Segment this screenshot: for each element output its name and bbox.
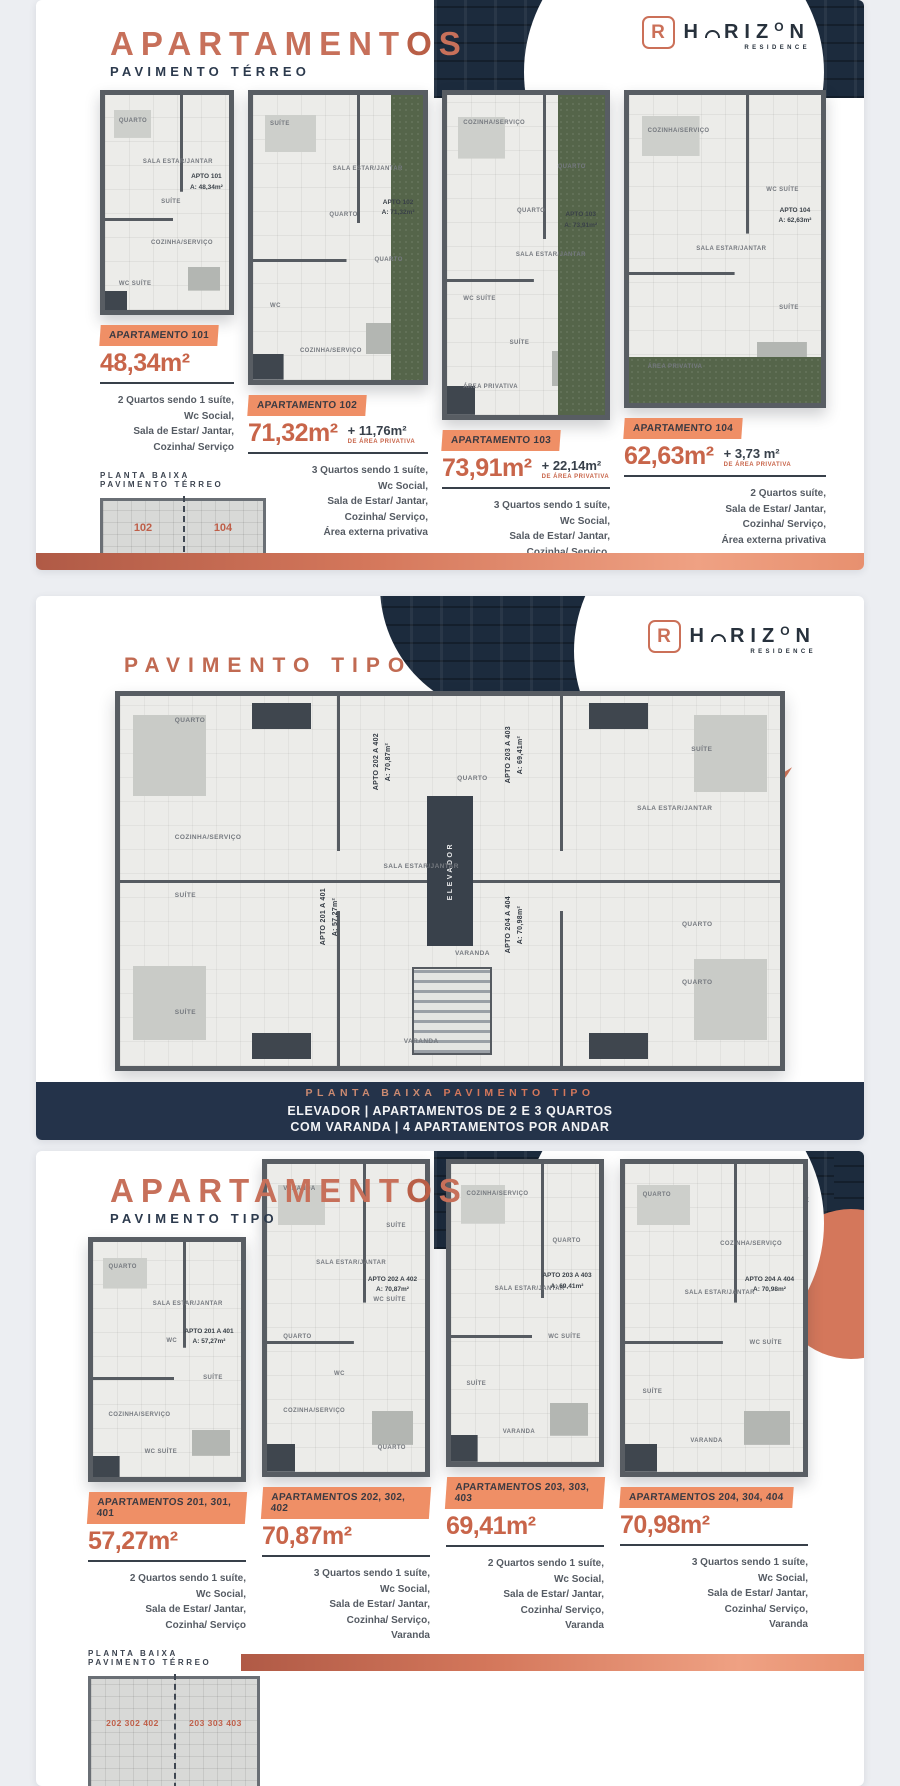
apartment-badge: APARTAMENTOS 202, 302, 402 [261, 1487, 431, 1519]
list-item-label: SUÍTE [203, 1375, 223, 1381]
apartment-features: 3 Quartos sendo 1 suíte, Wc Social, Sala… [620, 1555, 808, 1633]
area-row: 73,91m² + 22,14m²DE ÁREA PRIVATIVA [442, 454, 610, 483]
list-item-label: QUARTO [109, 1264, 137, 1270]
extra-area-value: + 11,76m² [348, 424, 416, 437]
list-item-label: QUARTO [374, 257, 402, 263]
list-item-label: 203 303 403 [189, 1718, 242, 1728]
divider-rule [100, 382, 234, 384]
title-part: S [439, 25, 468, 62]
page-title: PAVIMENTO TIPO [124, 654, 412, 678]
logo-h: H [690, 625, 710, 647]
apartment-column-201: APTO 201 A 401 A: 57,27m² QUARTOSALA EST… [88, 1159, 246, 1786]
area-row: 70,87m² [262, 1522, 430, 1551]
apartment-badge: APARTAMENTOS 203, 303, 403 [445, 1477, 605, 1509]
logo-h: H [684, 21, 704, 43]
unit-tag-203: APTO 203 A 403 A: 69,41m² [503, 726, 527, 783]
unit-tag: APTO 102 A: 71,32m² [382, 198, 415, 219]
list-item-label: SALA ESTAR/JANTAR [696, 246, 766, 252]
apartment-area: 71,32m² [248, 419, 338, 448]
list-item-label: QUARTO [682, 979, 712, 986]
page-title: APARTAMENTOS [110, 26, 468, 62]
horizon-logo: R HRIZON RESIDENCE [642, 16, 810, 51]
area-row: 48,34m² [100, 349, 234, 378]
room-labels: QUARTOSALA ESTAR/JANTARWCSUÍTECOZINHA/SE… [99, 1248, 235, 1471]
list-item-label: WC SUÍTE [373, 1297, 406, 1303]
site-plan-title: PLANTA BAIXA PAVIMENTO TÉRREO [100, 471, 234, 489]
apartment-column-203: APTO 203 A 403 A: 69,41m² COZINHA/SERVIÇ… [446, 1159, 604, 1786]
list-item-label: QUARTO [517, 208, 545, 214]
floorplan-203: APTO 203 A 403 A: 69,41m² COZINHA/SERVIÇ… [446, 1159, 604, 1467]
list-item-label: QUARTO [283, 1334, 311, 1340]
floorplan-204: APTO 204 A 404 A: 70,98m² QUARTOCOZINHA/… [620, 1159, 808, 1477]
extra-area: + 22,14m²DE ÁREA PRIVATIVA [542, 459, 610, 480]
apartment-columns: APTO 101 A: 48,34m² QUARTOSALA ESTAR/JAN… [100, 90, 826, 570]
logo-n: N [796, 625, 816, 647]
band-title-bold: PAVIMENTO TIPO [443, 1087, 594, 1099]
area-row: 69,41m² [446, 1512, 604, 1541]
apartment-column-202: APTO 202 A 402 A: 70,87m² VARANDASUÍTESA… [262, 1159, 430, 1786]
unit-tag: APTO 104 A: 62,63m² [779, 206, 812, 227]
navy-footer-band: PLANTA BAIXA PAVIMENTO TIPO ELEVADOR | A… [36, 1082, 864, 1140]
list-item-label: QUARTO [175, 717, 205, 724]
section-header: PAVIMENTO TIPO [124, 654, 412, 678]
band-description: ELEVADOR | APARTAMENTOS DE 2 E 3 QUARTOS… [287, 1103, 612, 1136]
apartment-columns: APTO 201 A 401 A: 57,27m² QUARTOSALA EST… [88, 1159, 808, 1786]
list-item-label: WC SUÍTE [145, 1449, 178, 1455]
divider-rule [624, 475, 826, 477]
title-part: APARTAMENT [110, 25, 406, 62]
extra-area: + 3,73 m²DE ÁREA PRIVATIVA [724, 447, 792, 468]
divider-rule [248, 452, 428, 454]
salmon-gradient-band [36, 553, 864, 570]
room-labels: COZINHA/SERVIÇOQUARTOSALA ESTAR/JANTARWC… [457, 1170, 593, 1456]
list-item-label: SALA ESTAR/JANTAR [384, 863, 459, 870]
divider-rule [446, 1545, 604, 1547]
logo-mark-letter: R [657, 627, 671, 646]
apartment-features: 2 Quartos sendo 1 suíte, Wc Social, Sala… [88, 1571, 246, 1633]
floorplan-103: APTO 103 A: 73,91m² COZINHA/SERVIÇOQUART… [442, 90, 610, 420]
list-item-label: COZINHA/SERVIÇO [151, 240, 213, 246]
room-labels: SUÍTESALA ESTAR/JANTARQUARTOQUARTOWCCOZI… [259, 101, 417, 374]
extra-area-note: DE ÁREA PRIVATIVA [542, 474, 610, 480]
title-part: PAVIMENTO [124, 654, 331, 677]
unit-tag: APTO 204 A 404 A: 70,98m² [745, 1275, 794, 1296]
list-item-label: QUARTO [457, 775, 487, 782]
apartment-badge: APARTAMENTOS 204, 304, 404 [619, 1487, 793, 1508]
floorplan-104: APTO 104 A: 62,63m² COZINHA/SERVIÇOWC SU… [624, 90, 826, 408]
apartment-column-101: APTO 101 A: 48,34m² QUARTOSALA ESTAR/JAN… [100, 90, 234, 570]
salmon-gradient-band [241, 1654, 864, 1671]
apartment-badge: APARTAMENTO 102 [247, 395, 367, 416]
extra-area-note: DE ÁREA PRIVATIVA [348, 439, 416, 445]
apartment-area: 69,41m² [446, 1512, 536, 1541]
horizon-logo: R HRIZON RESIDENCE [648, 620, 816, 655]
list-item-label: QUARTO [558, 164, 586, 170]
apartment-column-104: APTO 104 A: 62,63m² COZINHA/SERVIÇOWC SU… [624, 90, 826, 570]
band-title-light: PLANTA BAIXA [305, 1087, 443, 1099]
list-item-label: WC [270, 303, 281, 309]
divider-rule [262, 1555, 430, 1557]
logo-mark-icon: R [648, 620, 681, 653]
list-item-label: SUÍTE [175, 1009, 196, 1016]
logo-mark-icon: R [642, 16, 675, 49]
logo-mark-letter: R [651, 23, 665, 42]
floorplan-201: APTO 201 A 401 A: 57,27m² QUARTOSALA EST… [88, 1237, 246, 1482]
list-item-label: VARANDA [404, 1038, 439, 1045]
band-line-2: ELEVADOR | APARTAMENTOS DE 2 E 3 QUARTOS [287, 1104, 612, 1118]
list-item-label: VARANDA [690, 1438, 722, 1444]
area-row: 71,32m² + 11,76m²DE ÁREA PRIVATIVA [248, 419, 428, 448]
room-labels: QUARTOSALA ESTAR/JANTARSUÍTECOZINHA/SERV… [111, 101, 223, 304]
list-item-label: ÁREA PRIVATIVA [463, 384, 518, 390]
logo-riz: RIZ [724, 21, 774, 43]
apartment-badge: APARTAMENTOS 201, 301, 401 [87, 1492, 247, 1524]
logo-n: N [790, 21, 810, 43]
title-accent-o: O [406, 1172, 439, 1209]
list-item-label: SALA ESTAR/JANTAR [143, 159, 213, 165]
list-item-label: QUARTO [643, 1192, 671, 1198]
list-item-label: COZINHA/SERVIÇO [300, 348, 362, 354]
apartment-features: 2 Quartos sendo 1 suíte, Wc Social, Sala… [446, 1556, 604, 1634]
apartment-features: 3 Quartos sendo 1 suíte, Wc Social, Sala… [262, 1566, 430, 1644]
page-title: APARTAMENTOS [110, 1173, 468, 1209]
list-item-label: SUÍTE [643, 1389, 663, 1395]
title-accent-o: O [406, 25, 439, 62]
apartment-area: 62,63m² [624, 442, 714, 471]
list-item-label: QUARTO [378, 1445, 406, 1451]
list-item-label: WC [166, 1338, 177, 1344]
divider-rule [442, 487, 610, 489]
apartment-badge: APARTAMENTO 104 [623, 418, 743, 439]
unit-tag-202: APTO 202 A 402 A: 70,87m² [371, 733, 395, 790]
divider-rule [88, 1560, 246, 1562]
list-item-label: 102 [134, 522, 152, 534]
extra-area-note: DE ÁREA PRIVATIVA [724, 462, 792, 468]
logo-riz: RIZ [730, 625, 780, 647]
list-item-label: SUÍTE [175, 892, 196, 899]
site-plan-title: PLANTA BAIXA PAVIMENTO TÉRREO [88, 1649, 246, 1667]
site-plan-block: PLANTA BAIXA PAVIMENTO TÉRREO 202 302 40… [88, 1649, 246, 1786]
list-item-label: SUÍTE [691, 746, 712, 753]
list-item-label: VARANDA [455, 950, 490, 957]
logo-small-o: O [774, 20, 789, 34]
logo-arc-o-icon [705, 30, 720, 38]
logo-wordmark: HRIZON RESIDENCE [690, 620, 816, 655]
list-item-label: QUARTO [119, 118, 147, 124]
title-part: APARTAMENT [110, 1172, 406, 1209]
list-item-label: VARANDA [503, 1429, 535, 1435]
list-item-label: WC [334, 1371, 345, 1377]
list-item-label: COZINHA/SERVIÇO [109, 1412, 171, 1418]
extra-area-value: + 22,14m² [542, 459, 610, 472]
list-item-label: WC SUÍTE [548, 1334, 581, 1340]
apartment-column-103: APTO 103 A: 73,91m² COZINHA/SERVIÇOQUART… [442, 90, 610, 570]
apartment-area: 57,27m² [88, 1527, 178, 1556]
apartment-area: 70,87m² [262, 1522, 352, 1551]
page-subtitle: PAVIMENTO TIPO [110, 1211, 468, 1226]
room-labels: QUARTOCOZINHA/SERVIÇOSALA ESTAR/JANTARWC… [631, 1170, 797, 1466]
section-pavimento-terreo: R HRIZON RESIDENCE APARTAMENTOS PAVIMENT… [36, 0, 864, 570]
unit-tag: APTO 203 A 403 A: 69,41m² [542, 1271, 591, 1292]
list-item-label: ÁREA PRIVATIVA [648, 364, 703, 370]
room-labels: COZINHA/SERVIÇOWC SUÍTESALA ESTAR/JANTAR… [635, 101, 815, 397]
list-item-label: QUARTO [552, 1238, 580, 1244]
title-bold: TIPO [331, 654, 412, 677]
list-item-label: SUÍTE [161, 199, 181, 205]
apartment-badge: APARTAMENTO 103 [441, 430, 561, 451]
logo-subtitle: RESIDENCE [684, 45, 810, 51]
list-item-label: SALA ESTAR/JANTAR [316, 1260, 386, 1266]
apartment-features: 2 Quartos sendo 1 suíte, Wc Social, Sala… [100, 393, 234, 455]
list-item-label: WC SUÍTE [766, 187, 799, 193]
list-item-label: 104 [214, 522, 232, 534]
section-header: APARTAMENTOS PAVIMENTO TIPO [110, 1173, 468, 1226]
list-item-label: WC SUÍTE [463, 296, 496, 302]
list-item-label: COZINHA/SERVIÇO [720, 1241, 782, 1247]
list-item-label: WC SUÍTE [119, 281, 152, 287]
logo-small-o: O [780, 624, 795, 638]
apartment-column-204: APTO 204 A 404 A: 70,98m² QUARTOCOZINHA/… [620, 1159, 808, 1786]
section-header: APARTAMENTOS PAVIMENTO TÉRREO [110, 26, 468, 79]
list-item-label: WC SUÍTE [750, 1340, 783, 1346]
list-item-label: COZINHA/SERVIÇO [175, 834, 242, 841]
list-item-label: COZINHA/SERVIÇO [283, 1408, 345, 1414]
list-item-label: COZINHA/SERVIÇO [467, 1191, 529, 1197]
list-item-label: COZINHA/SERVIÇO [648, 128, 710, 134]
area-row: 57,27m² [88, 1527, 246, 1556]
area-row: 62,63m² + 3,73 m²DE ÁREA PRIVATIVA [624, 442, 826, 471]
list-item-label: SALA ESTAR/JANTAR [516, 252, 586, 258]
list-item-label: COZINHA/SERVIÇO [463, 120, 525, 126]
band-title: PLANTA BAIXA PAVIMENTO TIPO [305, 1087, 594, 1099]
site-plan-thumbnail: 202 302 402203 303 403201 301 401204 304… [88, 1676, 260, 1786]
unit-tag: APTO 103 A: 73,91m² [564, 210, 597, 231]
apartment-features: 3 Quartos sendo 1 suíte, Wc Social, Sala… [248, 463, 428, 541]
divider-rule [620, 1544, 808, 1546]
apartment-area: 73,91m² [442, 454, 532, 483]
list-item-label: SUÍTE [779, 305, 799, 311]
page-subtitle: PAVIMENTO TÉRREO [110, 64, 468, 79]
apartment-features: 2 Quartos suíte, Sala de Estar/ Jantar, … [624, 486, 826, 548]
room-labels: QUARTOSUÍTEQUARTOSALA ESTAR/JANTARCOZINH… [130, 706, 770, 1056]
list-item-label: SUÍTE [467, 1381, 487, 1387]
logo-subtitle: RESIDENCE [690, 649, 816, 655]
unit-tag: APTO 101 A: 48,34m² [190, 172, 223, 193]
extra-area: + 11,76m²DE ÁREA PRIVATIVA [348, 424, 416, 445]
logo-arc-o-icon [711, 634, 726, 642]
section-apartamentos-tipo: R HRIZON RESIDENCE APARTAMENTOS PAVIMENT… [36, 1151, 864, 1786]
list-item-label: SALA ESTAR/JANTAR [637, 805, 712, 812]
list-item-label: 202 302 402 [106, 1718, 159, 1728]
band-line-3: COM VARANDA | 4 APARTAMENTOS POR ANDAR [290, 1120, 609, 1134]
title-part: S [439, 1172, 468, 1209]
apartment-badge: APARTAMENTO 101 [99, 325, 219, 346]
list-item-label: QUARTO [329, 212, 357, 218]
apartment-column-102: APTO 102 A: 71,32m² SUÍTESALA ESTAR/JANT… [248, 90, 428, 570]
unit-tag-201: APTO 201 A 401 A: 57,27m² [318, 888, 342, 945]
floorplan-102: APTO 102 A: 71,32m² SUÍTESALA ESTAR/JANT… [248, 90, 428, 385]
apartment-area: 48,34m² [100, 349, 190, 378]
extra-area-value: + 3,73 m² [724, 447, 792, 460]
room-labels: COZINHA/SERVIÇOQUARTOQUARTOSALA ESTAR/JA… [453, 101, 599, 409]
unit-tag-204: APTO 204 A 404 A: 70,98m² [503, 896, 527, 953]
site-plan-unit-numbers: 202 302 402203 303 403201 301 401204 304… [91, 1679, 257, 1786]
apartment-area: 70,98m² [620, 1511, 710, 1540]
typical-floor-plan: ELEVADOR APTO 201 A 401 A: 57,27m² APTO … [115, 691, 785, 1071]
list-item-label: SALA ESTAR/JANTAR [153, 1301, 223, 1307]
list-item-label: SUÍTE [510, 340, 530, 346]
list-item-label: SUÍTE [270, 121, 290, 127]
list-item-label: QUARTO [682, 921, 712, 928]
list-item-label: SALA ESTAR/JANTAR [333, 166, 403, 172]
unit-tag: APTO 201 A 401 A: 57,27m² [184, 1327, 233, 1348]
area-row: 70,98m² [620, 1511, 808, 1540]
unit-tag: APTO 202 A 402 A: 70,87m² [368, 1275, 417, 1296]
section-pavimento-tipo-plan: R HRIZON RESIDENCE PAVIMENTO TIPO ELEVAD… [36, 596, 864, 1140]
floorplan-101: APTO 101 A: 48,34m² QUARTOSALA ESTAR/JAN… [100, 90, 234, 315]
logo-wordmark: HRIZON RESIDENCE [684, 16, 810, 51]
